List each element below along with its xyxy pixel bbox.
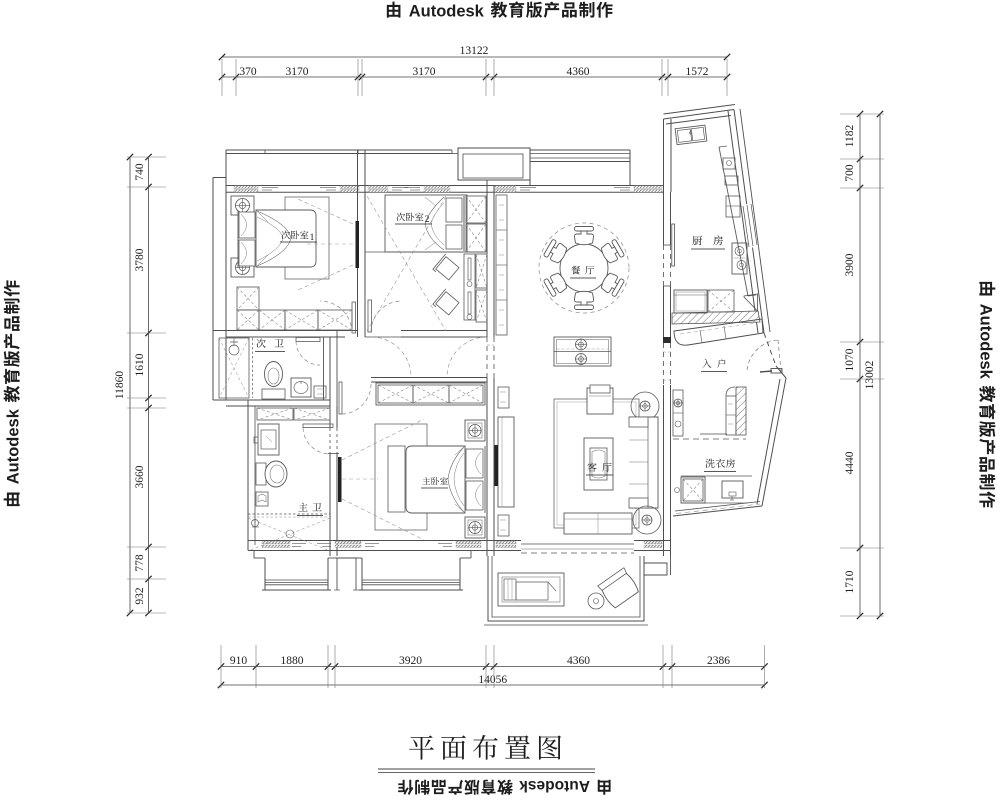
svg-text:1610: 1610 bbox=[134, 353, 146, 376]
svg-text:3170: 3170 bbox=[286, 66, 309, 78]
svg-text:Autodesk: Autodesk bbox=[4, 408, 22, 484]
svg-text:778: 778 bbox=[134, 554, 146, 572]
svg-text:4360: 4360 bbox=[567, 66, 590, 78]
svg-text:1: 1 bbox=[310, 233, 315, 243]
svg-text:1070: 1070 bbox=[844, 348, 856, 371]
svg-text:2386: 2386 bbox=[707, 655, 730, 667]
svg-text:3660: 3660 bbox=[134, 465, 146, 488]
svg-text:932: 932 bbox=[134, 587, 146, 605]
svg-text:Autodesk: Autodesk bbox=[977, 304, 995, 380]
svg-text:4440: 4440 bbox=[844, 451, 856, 474]
svg-text:11860: 11860 bbox=[114, 371, 126, 400]
svg-text:3780: 3780 bbox=[134, 248, 146, 271]
svg-text:700: 700 bbox=[844, 164, 856, 182]
svg-text:Autodesk: Autodesk bbox=[519, 777, 590, 794]
svg-text:3900: 3900 bbox=[844, 253, 856, 276]
svg-text:910: 910 bbox=[230, 655, 248, 667]
svg-text:1710: 1710 bbox=[844, 570, 856, 593]
svg-text:4360: 4360 bbox=[567, 655, 590, 667]
svg-text:3170: 3170 bbox=[413, 66, 436, 78]
svg-text:13122: 13122 bbox=[460, 45, 489, 57]
svg-text:1572: 1572 bbox=[686, 66, 709, 78]
svg-text:1182: 1182 bbox=[844, 124, 856, 147]
svg-text:740: 740 bbox=[134, 163, 146, 181]
svg-text:Autodesk: Autodesk bbox=[409, 2, 485, 20]
svg-text:14056: 14056 bbox=[478, 674, 507, 686]
svg-text:13002: 13002 bbox=[864, 360, 876, 389]
svg-text:2: 2 bbox=[425, 215, 430, 225]
svg-text:370: 370 bbox=[239, 66, 257, 78]
svg-text:3920: 3920 bbox=[399, 655, 422, 667]
svg-text:1880: 1880 bbox=[281, 655, 304, 667]
